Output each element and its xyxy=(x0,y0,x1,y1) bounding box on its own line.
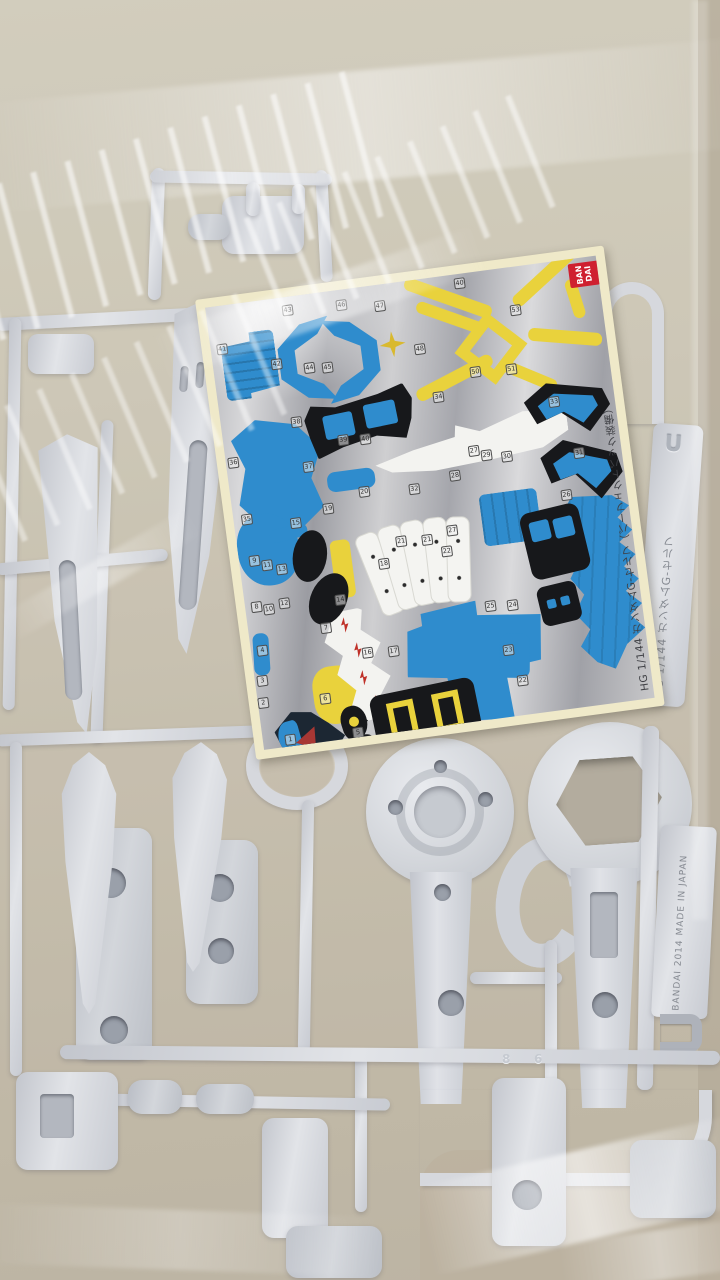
part-number-chip: 19 xyxy=(322,503,334,515)
leg-part-hole xyxy=(434,760,447,773)
part-number-chip: 21 xyxy=(421,534,433,546)
part-number-chip: 10 xyxy=(263,603,275,615)
part-number-chip: 48 xyxy=(414,343,426,355)
part-number-chip: 15 xyxy=(290,517,302,529)
part-number-chip: 27 xyxy=(468,445,480,457)
part-number-chip: 38 xyxy=(290,416,302,428)
block-recess xyxy=(40,1094,74,1138)
runner-letter: U xyxy=(664,431,684,457)
part-number-chips: 4143424445464740485350513438394036373328… xyxy=(205,256,655,750)
panel-hole xyxy=(512,1180,542,1210)
molded-digit: 6 xyxy=(534,1052,542,1066)
sprue-part-block xyxy=(262,1118,328,1238)
part-number-chip: 5 xyxy=(352,727,364,739)
part-number-chip: 22 xyxy=(441,545,453,557)
part-number-chip: 28 xyxy=(449,469,461,481)
part-number-chip: 24 xyxy=(506,599,518,611)
photo-gundam-kit-bag: U HG 1/144 ガンダムG-セルフ BANDAI 2014 MADE IN… xyxy=(0,0,720,1280)
panel-hole xyxy=(208,938,234,964)
runner-maker-text: BANDAI 2014 MADE IN JAPAN xyxy=(671,836,690,1011)
part-number-chip: 23 xyxy=(502,644,514,656)
sprue-bar xyxy=(355,1050,367,1212)
sticker-sheet-foil: 4143424445464740485350513438394036373328… xyxy=(205,256,655,750)
part-number-chip: 44 xyxy=(303,362,315,374)
part-number-chip: 12 xyxy=(278,597,290,609)
part-number-chip: 7 xyxy=(320,622,332,634)
part-number-chip: 4 xyxy=(256,644,268,656)
part-number-chip: 25 xyxy=(484,600,496,612)
part-number-chip: 46 xyxy=(335,299,347,311)
part-number-chip: 40 xyxy=(453,277,465,289)
part-number-chip: 43 xyxy=(282,304,294,316)
part-number-chip: 3 xyxy=(256,675,268,687)
part-number-chip: 2 xyxy=(257,697,269,709)
part-number-chip: 13 xyxy=(276,563,288,575)
sprue-part-block xyxy=(630,1140,716,1218)
part-number-chip: 26 xyxy=(560,489,572,501)
part-number-chip: 36 xyxy=(227,457,239,469)
leg-shaft-hole xyxy=(434,884,451,901)
part-number-chip: 22 xyxy=(517,674,529,686)
sprue-part-cylinder xyxy=(128,1080,182,1114)
part-number-chip: 34 xyxy=(432,391,444,403)
part-number-chip: 42 xyxy=(271,358,283,370)
part-number-chip: 53 xyxy=(509,304,521,316)
sprue-part-block xyxy=(492,1078,566,1246)
sprue-bar xyxy=(246,182,260,216)
sprue-bar xyxy=(10,742,22,1076)
molded-digit: 8 xyxy=(502,1052,510,1066)
leg-shaft-recess xyxy=(590,892,618,958)
leg-part-hole xyxy=(388,800,403,815)
part-number-chip: 45 xyxy=(321,361,333,373)
part-number-chip: 32 xyxy=(408,483,420,495)
part-number-chip: 33 xyxy=(548,396,560,408)
part-number-chip: 51 xyxy=(505,363,517,375)
sprue-part-cylinder xyxy=(196,1084,254,1114)
part-number-chip: 1 xyxy=(284,734,296,746)
leg-shaft-hole xyxy=(592,992,618,1018)
leg-part-hole xyxy=(478,792,493,807)
part-number-chip: 14 xyxy=(334,594,346,606)
part-number-chip: 16 xyxy=(361,647,373,659)
sprue-part-cylinder xyxy=(188,214,230,240)
part-number-chip: 11 xyxy=(261,559,273,571)
u-shaped-hole xyxy=(660,1014,702,1052)
sprue-part-block xyxy=(286,1226,382,1278)
part-number-chip: 47 xyxy=(374,300,386,312)
part-number-chip: 6 xyxy=(319,693,331,705)
bandai-logo: BAN DAI xyxy=(568,260,601,288)
part-number-chip: 8 xyxy=(250,601,262,613)
panel-hole xyxy=(100,1016,128,1044)
leg-part-center-recess xyxy=(414,786,466,838)
part-number-chip: 37 xyxy=(302,461,314,473)
part-number-chip: 9 xyxy=(248,555,260,567)
part-number-chip: 27 xyxy=(446,524,458,536)
part-number-chip: 21 xyxy=(395,535,407,547)
sticker-sheet: 4143424445464740485350513438394036373328… xyxy=(195,246,665,760)
sprue-part-block xyxy=(28,334,94,374)
part-number-chip: 18 xyxy=(378,558,390,570)
part-number-chip: 39 xyxy=(337,434,349,446)
part-number-chip: 40 xyxy=(359,433,371,445)
sprue-bar xyxy=(292,184,305,214)
part-number-chip: 35 xyxy=(241,513,253,525)
part-number-chip: 29 xyxy=(480,449,492,461)
part-number-chip: 30 xyxy=(501,450,513,462)
bag-edge-crease xyxy=(692,0,708,920)
part-number-chip: 17 xyxy=(388,645,400,657)
part-number-chip: 41 xyxy=(216,343,228,355)
part-number-chip: 20 xyxy=(358,486,370,498)
leg-shaft-hole xyxy=(438,990,464,1016)
part-number-chip: 50 xyxy=(469,366,481,378)
part-number-chip: 31 xyxy=(573,447,585,459)
